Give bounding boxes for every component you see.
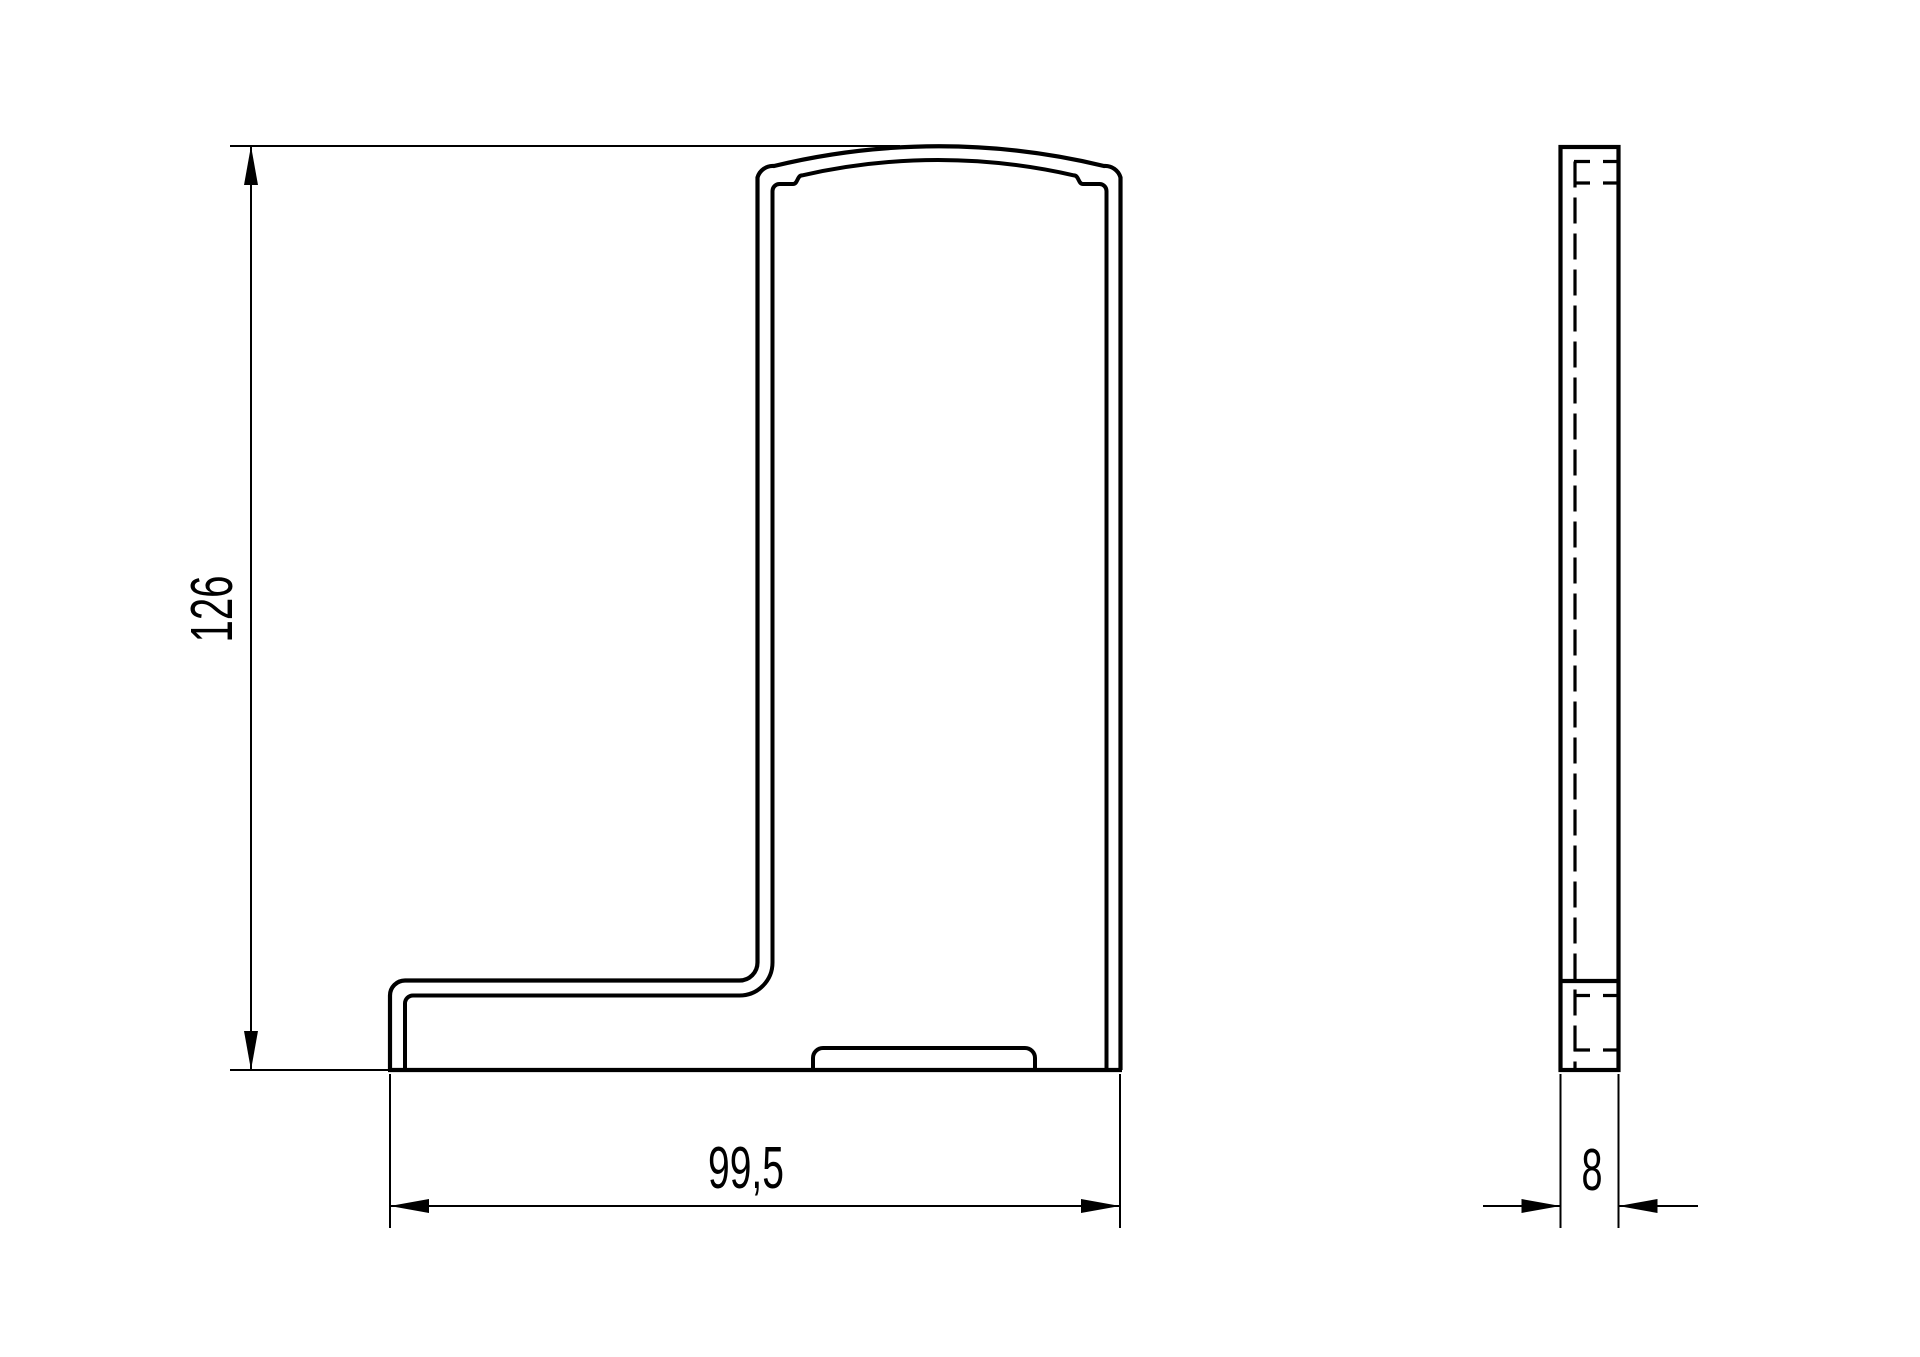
- svg-text:8: 8: [1582, 1137, 1603, 1203]
- svg-text:99,5: 99,5: [708, 1135, 784, 1201]
- svg-text:126: 126: [179, 576, 245, 643]
